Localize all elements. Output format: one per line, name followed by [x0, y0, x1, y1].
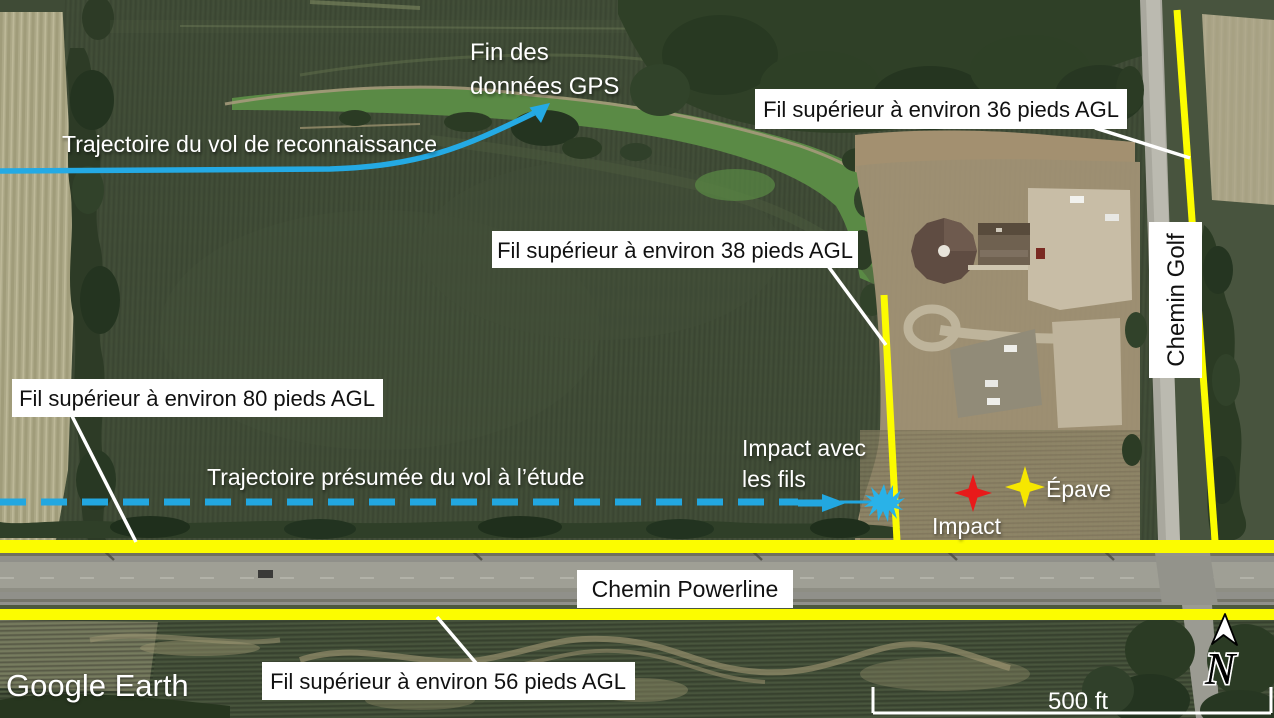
- svg-text:Épave: Épave: [1046, 476, 1111, 502]
- svg-text:les fils: les fils: [742, 466, 806, 492]
- svg-text:Trajectoire du vol de reconnai: Trajectoire du vol de reconnaissance: [62, 131, 437, 157]
- svg-text:Impact avec: Impact avec: [742, 435, 866, 461]
- svg-text:Impact: Impact: [932, 513, 1002, 539]
- svg-text:données GPS: données GPS: [470, 73, 619, 100]
- svg-text:Fil supérieur à environ 38 pie: Fil supérieur à environ 38 pieds AGL: [497, 238, 853, 263]
- svg-text:Fil supérieur à environ 80 pie: Fil supérieur à environ 80 pieds AGL: [19, 386, 375, 411]
- svg-text:Chemin Powerline: Chemin Powerline: [592, 576, 779, 602]
- svg-text:Trajectoire présumée du vol à: Trajectoire présumée du vol à l’étude: [207, 464, 585, 490]
- svg-text:Chemin Golf: Chemin Golf: [1163, 233, 1190, 367]
- svg-text:N: N: [1204, 644, 1238, 694]
- svg-text:Fin des: Fin des: [470, 39, 549, 66]
- svg-text:Fil supérieur à environ 36 pie: Fil supérieur à environ 36 pieds AGL: [763, 97, 1119, 122]
- svg-text:Fil supérieur à environ 56 pie: Fil supérieur à environ 56 pieds AGL: [270, 669, 626, 694]
- svg-text:500 ft: 500 ft: [1048, 688, 1108, 715]
- svg-text:Google Earth: Google Earth: [6, 668, 189, 703]
